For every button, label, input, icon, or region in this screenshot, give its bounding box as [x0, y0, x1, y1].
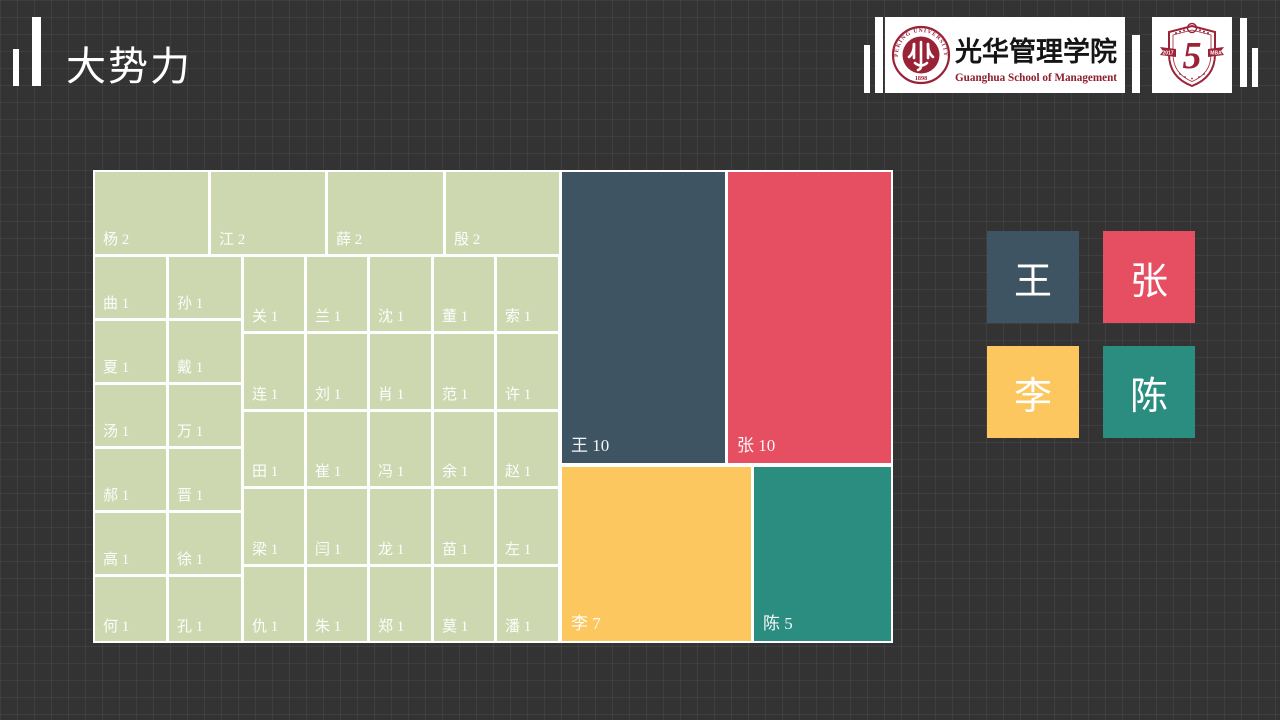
logo-accent-bar-left-tall — [875, 17, 883, 93]
guanghua-logo: PEKING UNIVERSITY 1898 光华管理学院 Guanghua S… — [885, 17, 1125, 93]
anniversary-shield-icon: 2017 MBA 5 — [1160, 24, 1224, 87]
treemap-cell-label: 左 1 — [505, 543, 531, 558]
treemap-cell-孙: 孙 1 — [169, 257, 241, 318]
treemap-cell-索: 索 1 — [497, 257, 558, 331]
treemap-cell-范: 范 1 — [434, 334, 494, 409]
treemap-cell-万: 万 1 — [169, 385, 241, 446]
treemap-cell-刘: 刘 1 — [307, 334, 367, 409]
treemap-cell-label: 陈 5 — [763, 615, 793, 632]
treemap-cell-董: 董 1 — [434, 257, 494, 331]
treemap-cell-冯: 冯 1 — [370, 412, 431, 486]
seal-year-text: 1898 — [915, 75, 927, 82]
treemap-cell-薛: 薛 2 — [328, 172, 443, 254]
legend-item-李: 李 — [987, 346, 1079, 438]
treemap-cell-label: 莫 1 — [442, 620, 468, 635]
treemap-cell-label: 关 1 — [252, 310, 278, 325]
treemap-cell-label: 梁 1 — [252, 543, 278, 558]
treemap-cell-label: 余 1 — [442, 465, 468, 480]
badge-number-text: 5 — [1183, 35, 1202, 77]
treemap-cell-label: 朱 1 — [315, 620, 341, 635]
treemap-cell-汤: 汤 1 — [95, 385, 166, 446]
treemap-cell-label: 刘 1 — [315, 388, 341, 403]
treemap-cell-label: 许 1 — [505, 388, 531, 403]
treemap-cell-label: 何 1 — [103, 620, 129, 635]
treemap-cell-郝: 郝 1 — [95, 449, 166, 510]
treemap-cell-朱: 朱 1 — [307, 567, 367, 641]
treemap-cell-曲: 曲 1 — [95, 257, 166, 318]
treemap-cell-label: 薛 2 — [336, 233, 362, 248]
treemap-cell-label: 连 1 — [252, 388, 278, 403]
treemap-cell-label: 闫 1 — [315, 543, 341, 558]
anniversary-badge-graphic: 2017 MBA 5 — [1152, 17, 1232, 93]
peking-university-seal-icon: PEKING UNIVERSITY 1898 — [893, 27, 949, 83]
treemap-cell-label: 沈 1 — [378, 310, 404, 325]
treemap-cell-龙: 龙 1 — [370, 489, 431, 564]
treemap-cell-徐: 徐 1 — [169, 513, 241, 574]
treemap-cell-郑: 郑 1 — [370, 567, 431, 641]
treemap-cell-label: 范 1 — [442, 388, 468, 403]
treemap-cell-潘: 潘 1 — [497, 567, 558, 641]
treemap-cell-沈: 沈 1 — [370, 257, 431, 331]
treemap-cell-余: 余 1 — [434, 412, 494, 486]
treemap-cell-label: 兰 1 — [315, 310, 341, 325]
page-title: 大势力 — [66, 34, 192, 92]
treemap-cell-孔: 孔 1 — [169, 577, 241, 641]
treemap-cell-label: 王 10 — [571, 437, 609, 454]
treemap-cell-label: 李 7 — [571, 615, 601, 632]
title-accent-bar-short — [13, 49, 19, 86]
treemap-cell-晋: 晋 1 — [169, 449, 241, 510]
logo-separator-bar — [1132, 35, 1140, 93]
treemap-cell-何: 何 1 — [95, 577, 166, 641]
legend-item-王: 王 — [987, 231, 1079, 323]
treemap-chart: 王 10张 10李 7陈 5杨 2江 2薛 2殷 2曲 1孙 1夏 1戴 1汤 … — [93, 170, 893, 643]
treemap-cell-兰: 兰 1 — [307, 257, 367, 331]
treemap-cell-label: 郝 1 — [103, 489, 129, 504]
treemap-cell-杨: 杨 2 — [95, 172, 208, 254]
treemap-cell-连: 连 1 — [244, 334, 304, 409]
treemap-cell-赵: 赵 1 — [497, 412, 558, 486]
treemap-cell-江: 江 2 — [211, 172, 325, 254]
treemap-cell-label: 仇 1 — [252, 620, 278, 635]
treemap-cell-张: 张 10 — [728, 172, 891, 463]
treemap-cell-label: 高 1 — [103, 553, 129, 568]
logo-accent-bar-right-short — [1252, 48, 1258, 87]
treemap-cell-label: 田 1 — [252, 465, 278, 480]
legend: 王张李陈 — [987, 231, 1195, 438]
logo-accent-bar-right-tall — [1240, 18, 1247, 87]
treemap-cell-肖: 肖 1 — [370, 334, 431, 409]
treemap-cell-殷: 殷 2 — [446, 172, 559, 254]
treemap-cell-label: 晋 1 — [177, 489, 203, 504]
treemap-cell-label: 苗 1 — [442, 543, 468, 558]
treemap-cell-label: 江 2 — [219, 233, 245, 248]
treemap-cell-夏: 夏 1 — [95, 321, 166, 382]
treemap-cell-label: 杨 2 — [103, 233, 129, 248]
legend-item-陈: 陈 — [1103, 346, 1195, 438]
slide-background: 大势力 PEKING UNIVERSITY — [0, 0, 1280, 720]
treemap-cell-label: 郑 1 — [378, 620, 404, 635]
treemap-cell-label: 万 1 — [177, 425, 203, 440]
title-accent-bar-tall — [32, 17, 41, 86]
treemap-cell-梁: 梁 1 — [244, 489, 304, 564]
guanghua-en-title: Guanghua School of Management — [955, 70, 1117, 84]
treemap-cell-莫: 莫 1 — [434, 567, 494, 641]
treemap-cell-仇: 仇 1 — [244, 567, 304, 641]
treemap-cell-label: 索 1 — [505, 310, 531, 325]
treemap-cell-左: 左 1 — [497, 489, 558, 564]
treemap-cell-王: 王 10 — [562, 172, 725, 463]
treemap-cell-闫: 闫 1 — [307, 489, 367, 564]
treemap-cell-label: 汤 1 — [103, 425, 129, 440]
treemap-cell-李: 李 7 — [562, 467, 751, 641]
guanghua-logo-graphic: PEKING UNIVERSITY 1898 光华管理学院 Guanghua S… — [885, 17, 1125, 93]
treemap-cell-label: 赵 1 — [505, 465, 531, 480]
legend-item-张: 张 — [1103, 231, 1195, 323]
treemap-cell-label: 董 1 — [442, 310, 468, 325]
treemap-cell-label: 冯 1 — [378, 465, 404, 480]
treemap-cell-label: 孙 1 — [177, 297, 203, 312]
treemap-cell-label: 孔 1 — [177, 620, 203, 635]
treemap-cell-高: 高 1 — [95, 513, 166, 574]
treemap-cell-label: 潘 1 — [505, 620, 531, 635]
logo-accent-bar-left-short — [864, 45, 870, 93]
badge-ribbon-left-text: 2017 — [1162, 51, 1173, 57]
treemap-cell-田: 田 1 — [244, 412, 304, 486]
anniversary-badge: 2017 MBA 5 — [1152, 17, 1232, 93]
treemap-cell-label: 崔 1 — [315, 465, 341, 480]
guanghua-cn-title: 光华管理学院 — [954, 36, 1117, 67]
badge-ribbon-right-text: MBA — [1210, 51, 1222, 57]
treemap-cell-label: 戴 1 — [177, 361, 203, 376]
treemap-cell-戴: 戴 1 — [169, 321, 241, 382]
treemap-cell-label: 徐 1 — [177, 553, 203, 568]
treemap-cell-label: 夏 1 — [103, 361, 129, 376]
treemap-cell-关: 关 1 — [244, 257, 304, 331]
treemap-cell-label: 张 10 — [737, 437, 775, 454]
treemap-cell-崔: 崔 1 — [307, 412, 367, 486]
treemap-cell-label: 曲 1 — [103, 297, 129, 312]
treemap-cell-许: 许 1 — [497, 334, 558, 409]
treemap-cell-苗: 苗 1 — [434, 489, 494, 564]
treemap-cell-陈: 陈 5 — [754, 467, 891, 641]
treemap-cell-label: 肖 1 — [378, 388, 404, 403]
treemap-cell-label: 殷 2 — [454, 233, 480, 248]
treemap-cell-label: 龙 1 — [378, 543, 404, 558]
